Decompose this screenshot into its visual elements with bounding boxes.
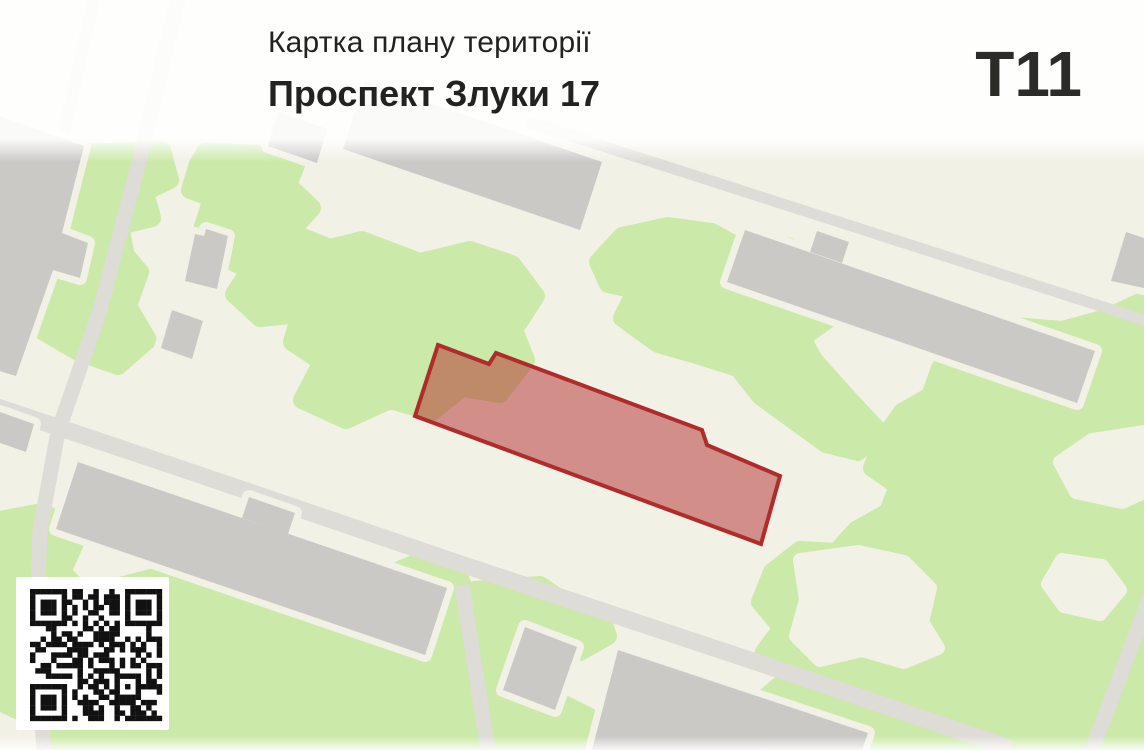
header-titles: Картка плану території Проспект Злуки 17	[268, 28, 600, 112]
plan-code: T11	[975, 42, 1082, 106]
plan-card: Картка плану території Проспект Злуки 17…	[0, 0, 1144, 750]
card-title: Картка плану території	[268, 28, 600, 58]
card-address: Проспект Злуки 17	[268, 76, 600, 112]
clearing	[1048, 560, 1120, 614]
qr-code	[16, 577, 169, 730]
clearing	[796, 552, 938, 662]
